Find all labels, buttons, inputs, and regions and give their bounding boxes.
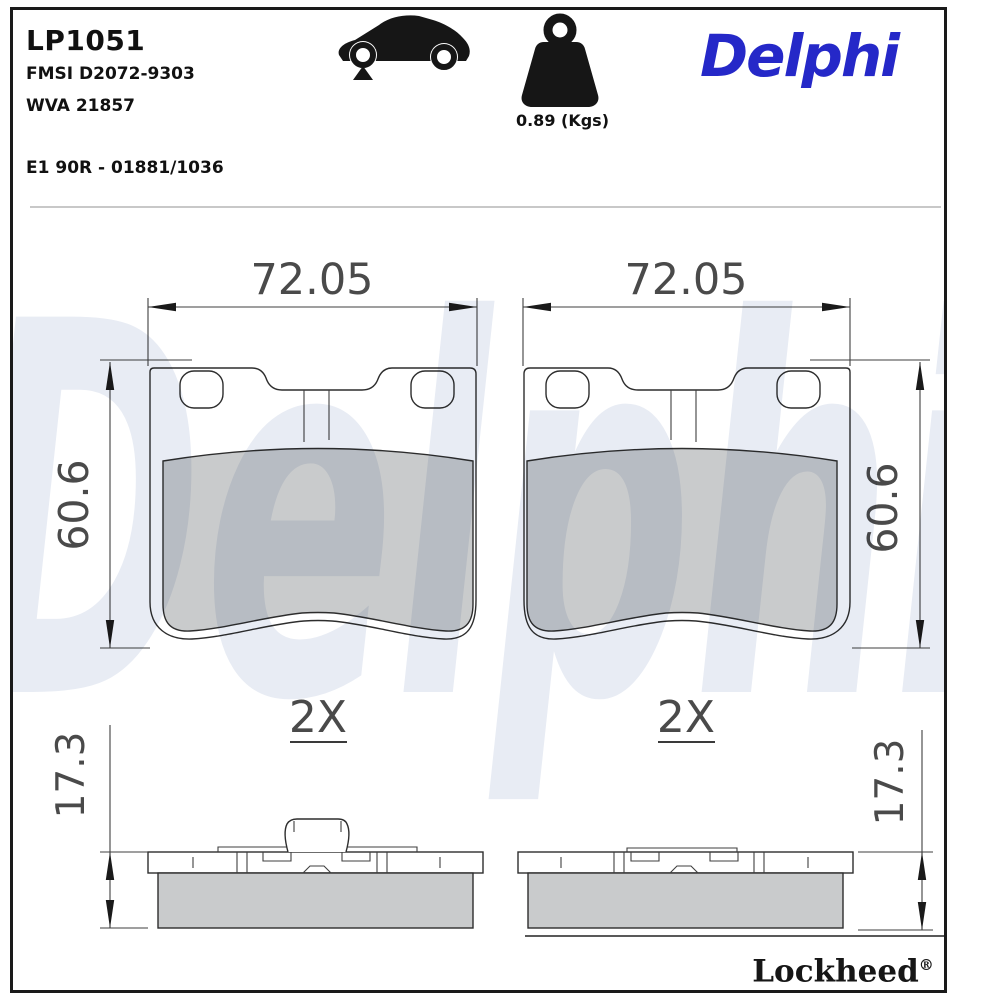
brake-pad-datasheet: LP1051 FMSI D2072-9303 WVA 21857 E1 90R … [0, 0, 1000, 1000]
page-border-frame [10, 7, 947, 993]
